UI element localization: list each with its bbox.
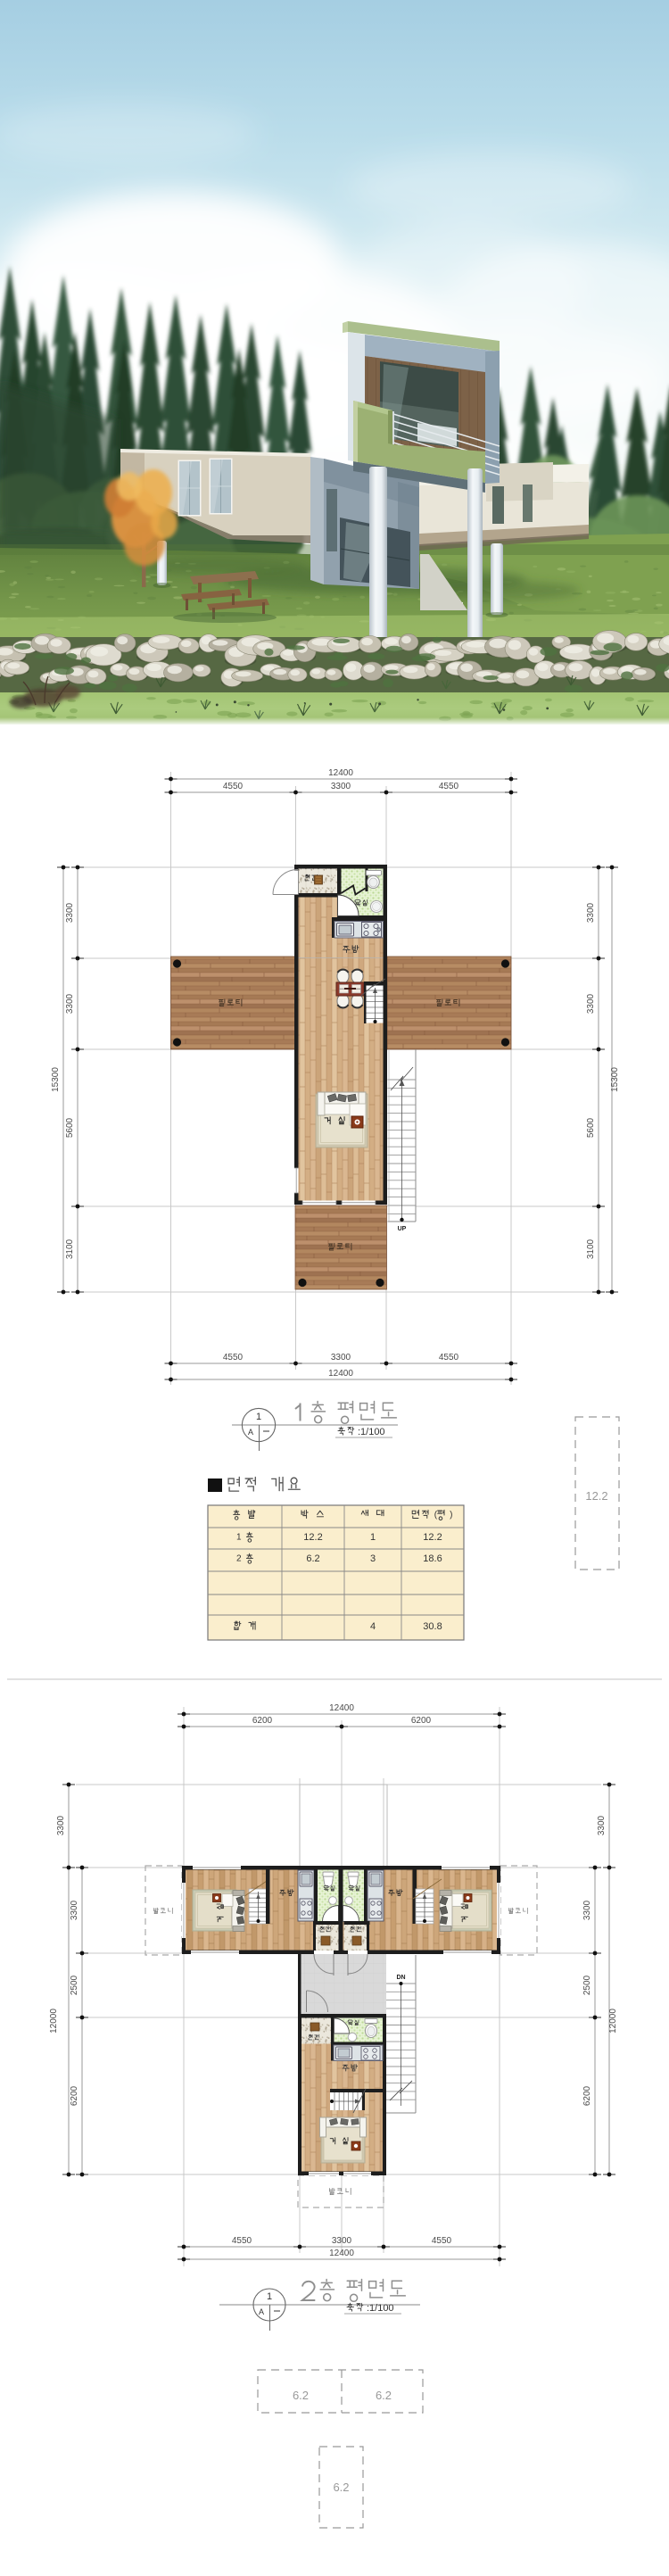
svg-text:1: 1 xyxy=(267,2291,272,2302)
svg-text:4550: 4550 xyxy=(232,2236,252,2246)
svg-text:4550: 4550 xyxy=(439,782,459,791)
svg-text:12.2: 12.2 xyxy=(585,1489,607,1503)
svg-text::1/100: :1/100 xyxy=(367,2303,394,2314)
svg-text:3300: 3300 xyxy=(56,1815,66,1835)
svg-text:6200: 6200 xyxy=(582,2085,592,2106)
svg-text:6200: 6200 xyxy=(252,1716,273,1726)
svg-text:12400: 12400 xyxy=(328,1369,353,1379)
svg-text:3300: 3300 xyxy=(582,1900,592,1920)
svg-text:6.2: 6.2 xyxy=(376,2389,392,2402)
svg-text:12.2: 12.2 xyxy=(423,1532,442,1543)
svg-text:DN: DN xyxy=(396,1975,405,1981)
svg-text:UP: UP xyxy=(398,1226,407,1232)
svg-text:2500: 2500 xyxy=(582,1975,592,1995)
svg-text:3300: 3300 xyxy=(65,993,75,1014)
svg-text:3300: 3300 xyxy=(65,902,75,923)
svg-text:4550: 4550 xyxy=(223,1353,244,1363)
svg-text:3100: 3100 xyxy=(65,1238,75,1259)
svg-text:6200: 6200 xyxy=(411,1716,432,1726)
svg-text:4550: 4550 xyxy=(439,1353,459,1363)
svg-text:5600: 5600 xyxy=(65,1117,75,1138)
svg-text:15300: 15300 xyxy=(51,1067,61,1092)
svg-text:12400: 12400 xyxy=(329,2249,354,2258)
svg-text:A: A xyxy=(248,1428,253,1437)
svg-text:6.2: 6.2 xyxy=(293,2389,309,2402)
svg-text:3300: 3300 xyxy=(331,1353,351,1363)
svg-text:3300: 3300 xyxy=(332,2236,352,2246)
svg-text:5600: 5600 xyxy=(586,1117,596,1138)
svg-text:3300: 3300 xyxy=(331,782,351,791)
svg-text:4550: 4550 xyxy=(223,782,244,791)
svg-text:2500: 2500 xyxy=(70,1975,79,1995)
svg-text:6200: 6200 xyxy=(70,2085,79,2106)
svg-text:3300: 3300 xyxy=(586,902,596,923)
svg-text:6.2: 6.2 xyxy=(306,1553,319,1564)
svg-text:12400: 12400 xyxy=(329,1703,354,1713)
svg-text:15300: 15300 xyxy=(610,1067,620,1092)
svg-text::1/100: :1/100 xyxy=(358,1427,385,1437)
svg-text:A: A xyxy=(259,2307,264,2316)
svg-text:1: 1 xyxy=(236,1533,242,1543)
svg-text:6.2: 6.2 xyxy=(333,2481,349,2494)
svg-text:3300: 3300 xyxy=(586,993,596,1014)
svg-text:12000: 12000 xyxy=(49,2009,59,2033)
svg-text:3: 3 xyxy=(370,1553,376,1564)
svg-text:1: 1 xyxy=(256,1412,261,1422)
svg-text:1: 1 xyxy=(370,1532,376,1543)
svg-text:4550: 4550 xyxy=(432,2236,452,2246)
svg-text:18.6: 18.6 xyxy=(423,1553,442,1564)
svg-text:12400: 12400 xyxy=(328,768,353,778)
svg-text:): ) xyxy=(450,1511,452,1520)
svg-text:12000: 12000 xyxy=(608,2009,618,2033)
svg-text:3100: 3100 xyxy=(586,1238,596,1259)
svg-text:12.2: 12.2 xyxy=(303,1532,322,1543)
svg-text:3300: 3300 xyxy=(70,1900,79,1920)
svg-text:2: 2 xyxy=(236,1554,242,1564)
svg-text:3300: 3300 xyxy=(597,1815,607,1835)
svg-text:4: 4 xyxy=(370,1621,376,1632)
svg-text:30.8: 30.8 xyxy=(423,1621,442,1632)
